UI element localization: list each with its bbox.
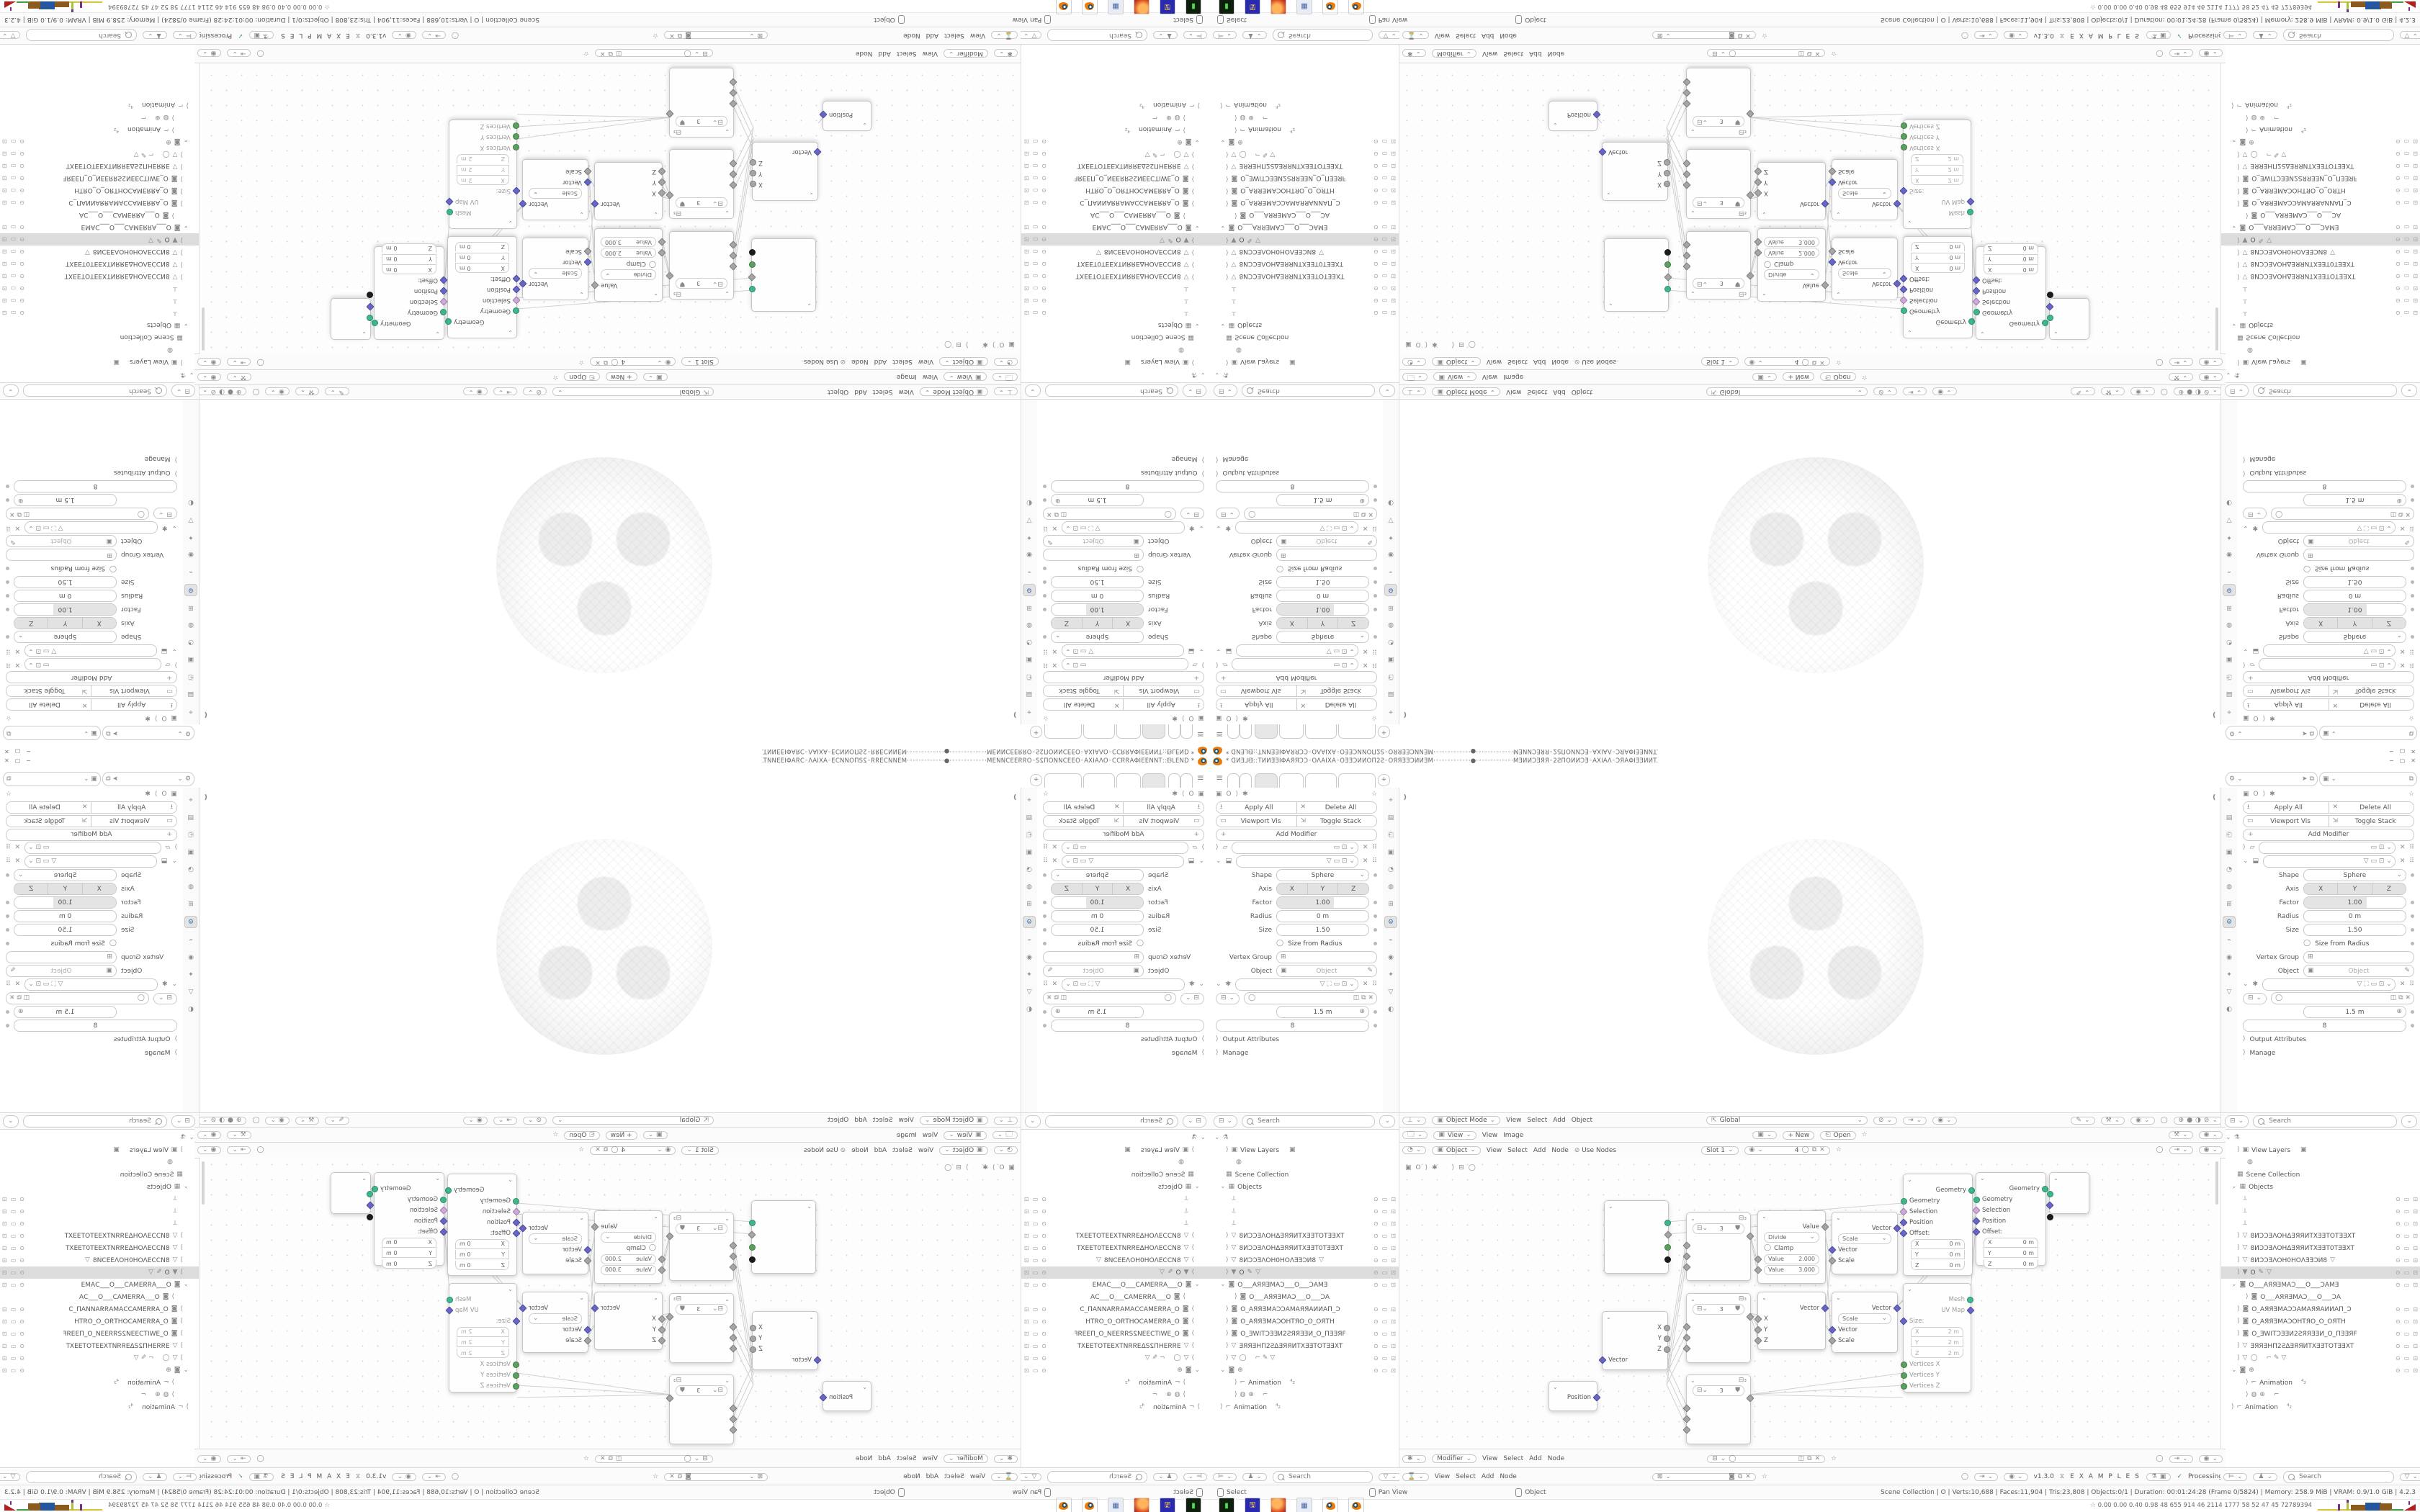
animate-dot[interactable] [1373, 608, 1377, 611]
filter-dropdown[interactable]: ♟⌄ [1153, 1473, 1178, 1481]
modifier-name-field[interactable]: ▭ ⊡ ⌄ [1062, 842, 1188, 854]
collapse-icon[interactable]: ⌄ [579, 1215, 584, 1221]
copy-icon[interactable]: ⧉ [6, 776, 11, 783]
animate-dot[interactable] [6, 485, 9, 488]
menu-select[interactable]: Select [892, 1147, 913, 1154]
drag-handle-icon[interactable]: ⠿ [1043, 981, 1048, 988]
delete-icon[interactable]: ✕ [1363, 981, 1368, 988]
manage-section[interactable]: Manage [145, 456, 171, 463]
animate-dot[interactable] [6, 942, 9, 945]
outliner-row-object[interactable]: ⟩▽ƎЯЯƎHΠ2ƧΔƎЯЯИTXƎƎTOTƎƎXT⊙▭⊡ [2221, 160, 2420, 172]
new-image-button[interactable]: + New [1783, 1131, 1814, 1140]
overlays-dropdown[interactable]: ◉⌄ [2004, 1473, 2027, 1481]
object-field[interactable]: ▣ Object ✎ [1276, 535, 1377, 547]
node-tree-type-dropdown[interactable]: Modifier⌄ [1432, 1454, 1476, 1463]
outliner-row-view-layers[interactable]: ⟩▣View Layers▣ [1210, 356, 1399, 368]
animate-dot[interactable] [1373, 594, 1377, 598]
int-socket[interactable] [1664, 261, 1671, 268]
position-socket[interactable] [512, 1218, 520, 1226]
editor-type-button[interactable]: ◔⌄ [994, 358, 1018, 366]
size-from-radius-radio[interactable]: ◯ [2303, 565, 2311, 572]
outliner-row-object[interactable]: ⟩▽8ИƆƆƎΛOHΔƎЯЯИTXƎƎTOTƎƎXT⊙▭⊡ [0, 270, 199, 282]
factor-slider[interactable]: 1.00 [1276, 603, 1369, 616]
menu-add[interactable]: Add [874, 359, 887, 366]
tab-particles-icon[interactable]: ⌁ [185, 935, 197, 945]
outliner-row[interactable]: ◍ [1021, 1156, 1210, 1169]
tab-modifiers-icon[interactable]: ⚙ [1384, 584, 1397, 596]
geometry-socket[interactable] [1664, 286, 1671, 292]
x-field[interactable]: X0 m [1911, 264, 1965, 274]
tab-object-icon[interactable]: ⊞ [2223, 603, 2235, 613]
value-socket[interactable] [1754, 1255, 1762, 1263]
drag-handle-icon[interactable]: ⠿ [2409, 524, 2414, 531]
tab-viewlayer-icon[interactable]: ▣ [2223, 847, 2235, 858]
animate-dot[interactable] [1043, 485, 1047, 488]
id-type-dropdown[interactable]: ⊟⌄ [1180, 508, 1204, 520]
add-workspace-button[interactable]: + [1030, 726, 1042, 738]
outliner-row-view-layers[interactable]: ⟩▣View Layers▣ [2221, 356, 2420, 368]
workspace-tab[interactable] [1240, 773, 1252, 788]
z-field[interactable]: Z2 m [1911, 154, 1963, 163]
scale-socket[interactable] [583, 1256, 591, 1264]
pin-icon[interactable]: ☆ [1831, 50, 1837, 57]
outliner-display-mode[interactable]: ⊟⌄ [171, 1115, 195, 1128]
size-field[interactable]: 1.50 [1051, 576, 1144, 588]
in-socket[interactable] [1682, 159, 1690, 167]
tab-constraints-icon[interactable]: ✦ [1023, 969, 1035, 980]
menu-view[interactable]: View [923, 1132, 938, 1139]
collapse-icon[interactable]: ⌄ [807, 303, 812, 310]
menu-image[interactable]: Image [897, 374, 917, 381]
sidebar-toggle-icon[interactable]: ❫ [1012, 795, 1018, 801]
shape-dropdown[interactable]: Sphere ⌄ [1276, 631, 1369, 643]
expand-icon[interactable]: ⟩ [1201, 1050, 1204, 1056]
add-modifier-button[interactable]: +Add Modifier [2243, 672, 2414, 684]
in-socket[interactable] [1682, 1344, 1690, 1352]
editor-type-button[interactable]: ✱⌄ [1402, 50, 1426, 58]
z-socket[interactable] [1754, 1336, 1762, 1344]
in-socket[interactable] [1682, 262, 1690, 270]
pin-icon[interactable]: ☆ [1371, 791, 1377, 798]
in-socket[interactable] [1682, 1415, 1690, 1423]
xray-toggle[interactable]: ◯ [252, 389, 259, 395]
outliner-filter-dropdown[interactable]: ⌄ [1379, 1115, 1395, 1128]
outliner-row[interactable]: ◍ [1210, 343, 1399, 356]
pin-icon[interactable]: ☆ [1862, 374, 1868, 380]
in-socket[interactable] [729, 1323, 737, 1331]
x-socket[interactable] [1754, 189, 1762, 197]
outliner-row-object[interactable]: ⟩▽8ИƆƆƎΛOH0HOΛƎƎƆИ8▽⊙▭⊡ [0, 246, 199, 258]
xray-toggle[interactable]: ◯ [2161, 1117, 2168, 1124]
outliner-row[interactable]: ⌄⚗ [1021, 368, 1210, 380]
node-size-field[interactable]: 1.5 m ⊕ [14, 494, 117, 506]
selection-socket[interactable] [439, 297, 447, 305]
geometry-socket[interactable] [1901, 307, 1907, 314]
group-output-node[interactable]: ⌄ [331, 298, 371, 340]
animate-dot[interactable] [1373, 498, 1377, 502]
workspace-tab[interactable] [1044, 773, 1082, 788]
image-socket[interactable] [749, 1256, 756, 1263]
menu-image[interactable]: Image [1503, 1132, 1523, 1139]
collapse-icon[interactable]: ⌄ [171, 981, 177, 988]
y-field[interactable]: Y2 m [457, 1338, 509, 1347]
tab-output-icon[interactable]: ⎗ [185, 829, 197, 840]
snap-toggle[interactable]: ⊘⌄ [523, 388, 547, 396]
collapse-icon[interactable]: ⌄ [1907, 220, 1912, 227]
filter-dropdown[interactable]: ♟⌄ [1242, 1473, 1267, 1481]
sample-node[interactable]: ⌄⊟₃ ⊟⌄ 3⛊ [1686, 231, 1751, 300]
editor-type-button[interactable]: ✱⌄ [994, 50, 1018, 58]
annotate-dropdown[interactable]: ✎⌄ [2071, 388, 2094, 396]
gizmo-dropdown[interactable]: ⚒⌄ [2169, 373, 2193, 381]
set-position-node[interactable]: ⌄ Geometry Geometry Selection Position O… [447, 236, 517, 338]
collapse-icon[interactable]: ⌄ [1762, 1213, 1767, 1220]
calculator-app-icon[interactable]: ▦ [1296, 0, 1312, 14]
outliner-row-animation[interactable]: ⟩⌐Animation⁴₂ [1021, 1401, 1210, 1413]
menu-object[interactable]: Object [828, 388, 848, 395]
snap-toggle[interactable]: ⊘⌄ [1873, 388, 1897, 396]
collapse-icon[interactable]: ⌄ [1762, 293, 1767, 300]
eyedropper-icon[interactable]: ✎ [1047, 538, 1053, 544]
tab-physics-icon[interactable]: ◉ [2223, 952, 2235, 963]
menu-node[interactable]: Node [856, 1455, 873, 1462]
geometry-socket[interactable] [445, 318, 452, 325]
menu-object[interactable]: Object [1572, 1117, 1592, 1124]
menu-add[interactable]: Add [1482, 1473, 1494, 1480]
image-socket[interactable] [367, 292, 373, 298]
workspace-tab[interactable] [1083, 724, 1115, 739]
in-socket[interactable] [729, 159, 737, 167]
collapse-icon[interactable]: ⌄ [725, 1296, 730, 1302]
modifier-name-field[interactable]: ▭ ⊡ ⌄ [2259, 658, 2395, 670]
in-socket[interactable] [729, 1263, 737, 1271]
outliner-row-animation[interactable]: ⟩⌐Animation⁴₂ [2221, 1377, 2420, 1389]
shading-mode-group[interactable]: ⊕ ● ◑ ⊘ ⌄ [2174, 388, 2223, 396]
value-socket[interactable] [1754, 248, 1762, 256]
tab-object-icon[interactable]: ⊞ [2223, 899, 2235, 909]
pin-icon[interactable]: ☆ [578, 359, 584, 365]
tab-particles-icon[interactable]: ⌁ [1385, 935, 1397, 945]
outliner-row-animation[interactable]: ⟩⌐Animation⁴₂ [1210, 99, 1399, 111]
collapse-icon[interactable]: ⌄ [1553, 122, 1558, 129]
filter-dropdown[interactable]: ♟⌄ [1242, 32, 1267, 40]
in-socket[interactable] [729, 99, 737, 107]
collapse-icon[interactable]: ⌄ [1762, 1295, 1767, 1301]
tab-data-icon[interactable]: ▽ [1385, 986, 1397, 997]
tab-physics-icon[interactable]: ◉ [185, 549, 197, 560]
node-group-selector[interactable]: ⊟⌄◯ ◫⧉✕ [595, 50, 713, 58]
blender-app-icon[interactable] [1056, 0, 1072, 14]
expand-icon[interactable]: ⟩ [174, 661, 177, 667]
add-modifier-button[interactable]: +Add Modifier [1216, 672, 1377, 684]
outliner-row-objects[interactable]: ⌄▦Objects [1210, 319, 1399, 331]
x-socket[interactable] [658, 1315, 665, 1323]
drag-handle-icon[interactable]: ⠿ [6, 858, 11, 865]
collapse-icon[interactable]: ⌄ [1690, 210, 1695, 217]
sample-node[interactable]: ⌄⊟₃ ⊟⌄ 3⛊ [669, 1374, 734, 1444]
animate-dot[interactable] [1373, 1024, 1377, 1027]
display-mode-dropdown[interactable]: ⊨⌄ [173, 32, 197, 40]
outliner-row-object[interactable]: ⟩◙O_ƎWITƆƎƎИ2ƧЯЯƎƎИ_O_ΠƎƎЯF⊙▭⊡ [0, 172, 199, 184]
in-socket[interactable] [1682, 181, 1690, 189]
scale-socket[interactable] [1828, 247, 1836, 255]
transform-orientation-dropdown[interactable]: ⇱Global ⌄ [1706, 387, 1868, 396]
editor-type-button[interactable]: ⊥⌄ [1402, 388, 1426, 396]
pin-icon[interactable]: ☆ [583, 1456, 589, 1462]
editor-type-button[interactable]: 🗔⌄ [992, 373, 1018, 381]
tab-scene-icon[interactable]: ◔ [1023, 637, 1035, 648]
xray-toggle[interactable]: ◯ [257, 50, 264, 57]
outliner-row-object[interactable]: ⟩▽8ИƆƆƎΛOHΔƎЯЯИTXƎƎTOTƎƎXT⊙▭⊡ [1210, 270, 1399, 282]
collapse-icon[interactable]: ⌄ [508, 220, 513, 227]
expand-icon[interactable]: ⟩ [1201, 1036, 1204, 1043]
snapping-dropdown[interactable]: ⇥⌄ [493, 388, 517, 396]
vertices-z-socket[interactable] [513, 122, 519, 129]
proportional-edit-toggle[interactable]: ◉⌄ [1932, 1117, 1956, 1125]
z-field[interactable]: Z0 m [1984, 243, 2038, 253]
axis-z-button[interactable]: Z [1338, 883, 1368, 894]
new-image-button[interactable]: + New [1783, 373, 1814, 382]
tab-render-icon[interactable]: ▤ [1023, 689, 1035, 700]
viewport-3d[interactable]: ❫ ❪ [1399, 400, 2220, 724]
collapse-icon[interactable]: ⌄ [171, 858, 177, 865]
viewport-vis-button[interactable]: ▭Viewport Vis [2244, 685, 2329, 696]
manage-section[interactable]: Manage [2250, 456, 2276, 463]
node-group-field[interactable]: ▽ ⛶ ▭ ⊡ ⌄ [1235, 521, 1358, 534]
tab-viewlayer-icon[interactable]: ▣ [1385, 847, 1397, 858]
group-input-node[interactable]: ⌄ [751, 1200, 816, 1274]
use-nodes-checkbox[interactable]: ⊘ Use Nodes [1574, 1147, 1616, 1154]
x-field[interactable]: X2 m [1911, 176, 1963, 186]
expand-icon[interactable]: ⟩ [2243, 1050, 2246, 1056]
apply-all-button[interactable]: ⭳Apply All [2244, 699, 2329, 710]
vertices-y-socket[interactable] [1901, 1372, 1907, 1379]
tab-object-icon[interactable]: ⊞ [185, 899, 197, 909]
outliner-row-object[interactable]: ⟩◙O_AЯЯƎMAƆOHTЯO_O_OЯTH⊙▭⊡ [1021, 184, 1210, 197]
animate-dot[interactable] [1373, 942, 1377, 945]
gizmo-dropdown[interactable]: ⚒⌄ [2101, 388, 2125, 396]
eyedropper-icon[interactable]: ✎ [10, 538, 16, 544]
selection-socket[interactable] [1899, 1207, 1907, 1215]
modifier-name-field[interactable]: ▽ ▭ ⊡ ⌄ [2263, 644, 2396, 657]
outliner-search[interactable] [1242, 385, 1375, 397]
object-context-icon[interactable]: ▣ [1198, 791, 1204, 798]
tab-physics-icon[interactable]: ◉ [185, 952, 197, 963]
overlays-dropdown[interactable]: ◉⌄ [197, 1131, 221, 1139]
collapse-icon[interactable]: ⌄ [1907, 1286, 1912, 1292]
modifier-context-icon[interactable]: ✱ [1242, 791, 1248, 798]
greeble-sphere-object[interactable] [496, 457, 712, 673]
size-field[interactable]: 1.50 [2303, 924, 2406, 936]
solid-shading-icon[interactable]: ● [2187, 389, 2192, 395]
collapse-icon[interactable]: ⌄ [435, 331, 440, 338]
vector-socket[interactable] [2045, 302, 2053, 310]
editor-type-button[interactable]: ⌛⌄ [1402, 32, 1429, 40]
y-socket[interactable] [1664, 1336, 1670, 1342]
pin-icon[interactable]: ☆ [1371, 714, 1377, 721]
copy-icon[interactable]: ⧉ [2409, 776, 2414, 783]
vector-socket[interactable] [813, 148, 821, 156]
manage-section[interactable]: Manage [1172, 1050, 1198, 1057]
animate-dot[interactable] [1373, 901, 1377, 904]
editor-type-button[interactable]: ✱⌄ [1402, 1455, 1426, 1463]
outliner-row-view-layers[interactable]: ⟩▣View Layers▣ [1021, 1144, 1210, 1156]
outliner-row-object[interactable]: ⟩▽8ИƆƆƎΛOHΔƎЯЯИTXƎƎTOTƎƎXT⊙▭⊡ [2221, 1230, 2420, 1242]
outliner-row[interactable]: ⟂⊙▭⊡ [0, 307, 199, 319]
gizmo-dropdown[interactable]: ⚒⌄ [2169, 1131, 2193, 1139]
viewport-vis-button[interactable]: ▭Viewport Vis [91, 685, 177, 696]
snapping-dropdown[interactable]: ⇥⌄ [227, 358, 251, 366]
delete-all-button[interactable]: ✕Delete All [1297, 802, 1377, 813]
tab-modifiers-icon[interactable]: ⚙ [2223, 584, 2236, 596]
vector-socket[interactable] [583, 1246, 591, 1254]
group-input-node[interactable]: ⌄ [1604, 1200, 1669, 1274]
in-socket[interactable] [729, 240, 737, 248]
outliner-row-object[interactable]: ⟩▽8ИƆƆƎΛOH0HOΛƎƎƆИ8▽⊙▭⊡ [1021, 1254, 1210, 1266]
xray-toggle[interactable]: ◯ [2156, 1147, 2163, 1153]
geometry-socket[interactable] [1973, 309, 1980, 315]
object-field[interactable]: ▣ Object ✎ [1276, 965, 1377, 977]
modifier-context-icon[interactable]: ✱ [1242, 714, 1248, 721]
outliner-row[interactable]: ⟂⊙▭⊡ [1210, 307, 1399, 319]
link-icon[interactable]: ⊕ [1055, 497, 1061, 503]
eyedropper-icon[interactable]: ✎ [2404, 968, 2410, 974]
tab-particles-icon[interactable]: ⌁ [1023, 567, 1035, 577]
outliner-row-view-layers[interactable]: ⟩▣View Layers▣ [0, 1144, 199, 1156]
outliner-row-object[interactable]: ⟩▽8ИƆƆƎΛOHΔƎЯЯИTXƎƎTOTƎƎXT⊙▭⊡ [0, 1230, 199, 1242]
value-socket[interactable] [1754, 238, 1762, 246]
drag-handle-icon[interactable]: ⠿ [2409, 858, 2414, 865]
x-socket[interactable] [1664, 181, 1670, 187]
tab-tool-icon[interactable]: ⌖ [2223, 706, 2235, 717]
y-field[interactable]: Y2 m [1911, 165, 1963, 174]
snapping-dropdown[interactable]: ⇥⌄ [2169, 1455, 2193, 1463]
expand-icon[interactable]: ⟩ [2243, 1036, 2246, 1043]
drag-handle-icon[interactable]: ⠿ [1372, 858, 1377, 865]
animate-dot[interactable] [6, 901, 9, 904]
object-context-icon[interactable]: ▣ [171, 791, 177, 798]
tab-object-icon[interactable]: ⊞ [185, 603, 197, 613]
y-field[interactable]: Y2 m [457, 165, 509, 174]
pin-icon[interactable]: ☆ [1862, 1132, 1868, 1138]
collapse-icon[interactable]: ⌄ [1836, 212, 1841, 218]
in-socket[interactable] [1682, 1323, 1690, 1331]
menu-add[interactable]: Add [1533, 359, 1546, 366]
sample-node[interactable]: ⌄⊟₃ ⊟⌄ 3⛊ [1686, 1374, 1751, 1444]
selection-socket[interactable] [1972, 1206, 1980, 1214]
image-selector[interactable]: ▣⌄ [1752, 373, 1777, 381]
modifier-name-field[interactable]: ▭ ⊡ ⌄ [1232, 658, 1358, 670]
drag-handle-icon[interactable]: ⠿ [2409, 661, 2414, 667]
animate-dot[interactable] [1043, 567, 1047, 570]
scene-selector[interactable]: ⚙⌄ ➤ ⧉ [2226, 772, 2318, 786]
menu-image[interactable]: Image [897, 1132, 917, 1139]
vertex-group-field[interactable]: ⊞ [1276, 951, 1377, 963]
collapse-icon[interactable]: ⌄ [362, 331, 367, 338]
tab-physics-icon[interactable]: ◉ [1023, 549, 1035, 560]
collapse-icon[interactable]: ⌄ [809, 1314, 814, 1320]
expand-icon[interactable]: ⟩ [174, 845, 177, 851]
gizmo-dropdown[interactable]: ⚒⌄ [227, 1131, 251, 1139]
collapse-icon[interactable]: ⌄ [1553, 1384, 1558, 1390]
greeble-sphere-object[interactable] [1708, 839, 1924, 1055]
group-input-node[interactable]: ⌄ [1604, 238, 1669, 312]
node-group-selector[interactable]: ⊟⌄◯ ◫⧉✕ [1707, 1455, 1825, 1463]
transform-orientation-dropdown[interactable]: ⇱Global ⌄ [1706, 1116, 1868, 1125]
node-size-field[interactable]: 1.5 m ⊕ [2303, 494, 2406, 506]
link-icon[interactable]: ⊕ [18, 1009, 24, 1015]
annotate-dropdown[interactable]: ✎⌄ [2071, 1117, 2094, 1125]
outliner-row-object[interactable]: ⟩▽8ИƆƆƎΛOHΔƎЯЯИTXƎƎT0TƎƎXT⊙▭⊡ [2221, 1242, 2420, 1254]
z-field[interactable]: Z2 m [1911, 1349, 1963, 1358]
copy-icon[interactable]: ⧉ [2310, 776, 2314, 783]
eyedropper-icon[interactable]: ✎ [1367, 968, 1373, 974]
tab-world-icon[interactable]: ◍ [1385, 620, 1397, 631]
operation-dropdown[interactable]: Divide⌄ [601, 269, 656, 280]
pin-icon[interactable]: ☆ [1043, 714, 1049, 721]
outliner-row-object[interactable]: ⌄◙O___AЯЯƎMAƆ___O___ƆAMƎ⊙▭⊡ [2221, 1279, 2420, 1291]
combine-xyz-node[interactable]: ⌄ Vector X Y Z [1757, 162, 1826, 220]
sample-node[interactable]: ⌄⊟₃ ⊟⌄ 3⛊ [669, 68, 734, 138]
collapse-icon[interactable]: ⌄ [171, 524, 177, 531]
cube-node[interactable]: ⌄ Mesh UV Map Size: X2 m Y2 m Z2 m Verti… [449, 1283, 517, 1392]
outliner-row[interactable]: ◍ [1021, 343, 1210, 356]
tab-scene-icon[interactable]: ◔ [1385, 864, 1397, 875]
tab-modifiers-icon[interactable]: ⚙ [1023, 916, 1036, 928]
data-field[interactable]: ◯ ◫ ⧉ ✕ [6, 508, 149, 520]
image-socket[interactable] [749, 249, 756, 256]
object-field[interactable]: ▣ Object ✎ [1043, 535, 1144, 547]
editor-type-button[interactable]: ◔⌄ [1402, 1146, 1426, 1154]
tab-world-icon[interactable]: ◍ [1023, 620, 1035, 631]
overlays-dropdown[interactable]: ◉⌄ [2199, 373, 2223, 381]
x-socket[interactable] [1754, 1315, 1762, 1323]
tab-data-icon[interactable]: ▽ [1023, 515, 1035, 526]
node-size-field[interactable]: 1.5 m ⊕ [2303, 1006, 2406, 1018]
outliner-row[interactable]: ⟂⊙▭⊡ [1021, 1205, 1210, 1218]
animate-dot[interactable] [6, 873, 9, 877]
mode-dropdown[interactable]: ▣ Object Mode⌄ [1432, 1116, 1500, 1125]
tab-render-icon[interactable]: ▤ [2223, 689, 2235, 700]
outliner-row-animation[interactable]: ⟩⌐Animation⁴₂ [0, 1401, 199, 1413]
uv-map-socket[interactable] [1966, 197, 1974, 205]
node-count-field[interactable]: 8 [1216, 1020, 1369, 1032]
in-socket[interactable] [729, 262, 737, 270]
geometry-node-editor[interactable]: ▣O⟩✱⟩⊟◯ ⌄ [200, 63, 1021, 355]
tab-output-icon[interactable]: ⎗ [2223, 829, 2235, 840]
toggle-stack-button[interactable]: ⇲Toggle Stack [1044, 816, 1124, 827]
geometry-node-editor[interactable]: ▣O⟩✱⟩⊟◯ ⌄ [1399, 1157, 2220, 1449]
overlays-dropdown[interactable]: ◉⌄ [197, 1455, 221, 1463]
apply-all-button[interactable]: ⭳Apply All [1124, 699, 1204, 710]
animate-dot[interactable] [1373, 914, 1377, 918]
workspace-tab-active[interactable] [1142, 724, 1165, 739]
search-input[interactable] [31, 31, 122, 40]
modifier-context-icon[interactable]: ✱ [2269, 714, 2275, 721]
vector-math-scale-node[interactable]: ⌄ Vector Scale⌄ Vector Scale [1832, 159, 1898, 220]
outliner-row[interactable]: ⌄◙⊕⊙▭⊡ [1021, 135, 1210, 148]
workspace-tab-active[interactable] [1255, 724, 1278, 739]
geometry-socket[interactable] [513, 307, 519, 314]
transform-orientation-dropdown[interactable]: ⇱Global ⌄ [552, 1116, 714, 1125]
menu-view[interactable]: View [923, 50, 938, 57]
expand-icon[interactable]: ⟩ [2243, 661, 2246, 667]
menu-view[interactable]: View [1482, 1132, 1497, 1139]
editor-type-button[interactable]: ⌛⌄ [1402, 1473, 1429, 1481]
menu-add[interactable]: Add [1529, 1455, 1541, 1462]
delete-all-button[interactable]: ✕Delete All [2329, 802, 2414, 813]
outliner-row-object[interactable]: ⟩▽8ИƆƆƎΛOHΔƎЯЯИTXƎƎT0TƎƎXT⊙▭⊡ [0, 258, 199, 270]
